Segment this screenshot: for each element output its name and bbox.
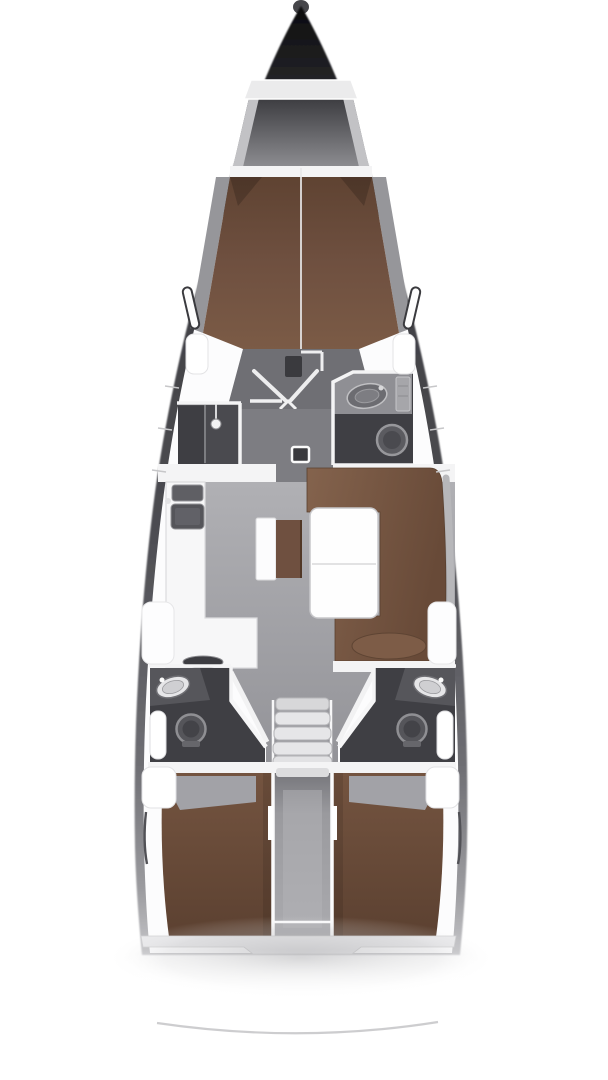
shower-head	[211, 419, 221, 429]
bench-seat	[256, 518, 276, 580]
bulkhead-band-mid	[240, 464, 276, 482]
companionway-step-2	[275, 712, 330, 725]
aft-head-port-toilet-lid	[182, 741, 200, 747]
deck-hatch-aft-port	[142, 767, 176, 808]
bulkhead-band-port	[158, 464, 240, 482]
floor-hatch	[292, 447, 309, 462]
aft-berth-starboard-shadow	[333, 773, 343, 937]
bench-cushion	[276, 520, 302, 578]
head-faucet	[379, 386, 384, 391]
head-toilet-bowl	[383, 431, 401, 449]
engine-step	[276, 768, 329, 777]
deck-patch-fwd-port	[186, 334, 208, 374]
windlass-shelf	[244, 80, 358, 99]
stern-white-fade	[80, 950, 525, 1030]
aft-head-starboard-toilet-bowl	[404, 721, 421, 738]
engine-compartment-inner	[283, 790, 322, 928]
aft-cabins	[148, 762, 456, 937]
cockpit-locker-starboard	[428, 602, 456, 664]
stern	[80, 916, 525, 1033]
deck-patch-fwd-starboard	[393, 334, 415, 374]
head-shelf	[396, 377, 410, 411]
salon-table	[310, 508, 378, 618]
bow-area	[230, 80, 372, 177]
companionway-step-1	[276, 698, 329, 710]
deck-hatch-head-port	[150, 711, 166, 759]
aft-head-port-toilet-bowl	[183, 721, 200, 738]
cockpit-locker-port	[142, 602, 174, 664]
deck-hatch-aft-starboard	[426, 767, 459, 808]
forward-head	[333, 372, 414, 465]
companionway-step-4	[273, 742, 332, 755]
forward-shower	[177, 403, 241, 465]
mast-step	[285, 356, 302, 377]
shower-room-dark-side	[178, 406, 204, 464]
aft-head-starboard-faucet	[439, 678, 444, 683]
floor-plan-svg: Sailing yacht interior layout plan, top-…	[0, 0, 608, 1080]
galley-knob	[165, 498, 171, 504]
yacht-floor-plan: Sailing yacht interior layout plan, top-…	[0, 0, 608, 1080]
aft-door-frame-starboard	[332, 806, 337, 840]
galley-stove-top	[175, 508, 200, 525]
companionway-step-3	[274, 727, 331, 740]
aft-head-starboard-toilet-lid	[403, 741, 421, 747]
deck-hatch-head-starboard	[437, 711, 453, 759]
aft-head-port-faucet	[160, 678, 165, 683]
aft-door-frame-port	[268, 806, 273, 840]
settee-cushion-round	[352, 633, 426, 659]
galley-sink	[172, 485, 203, 501]
